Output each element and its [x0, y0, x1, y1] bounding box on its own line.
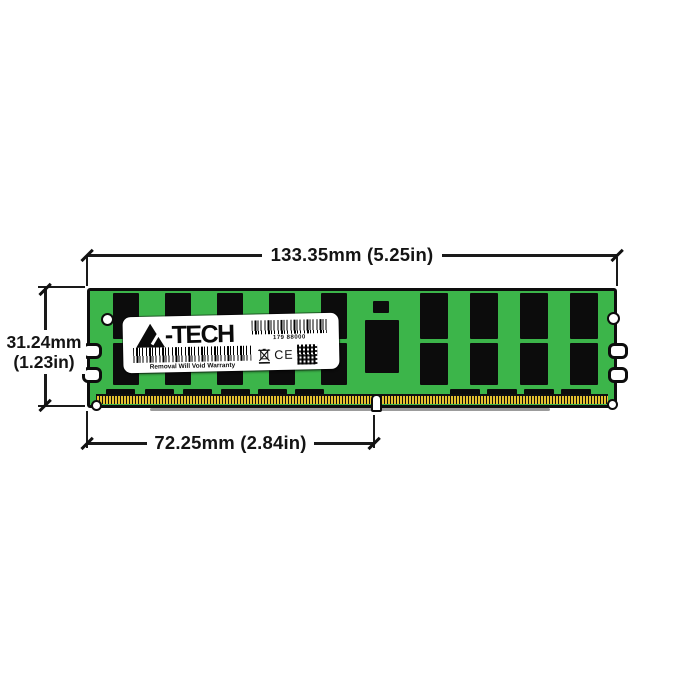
dram-chip — [420, 343, 448, 385]
qr-code-icon — [297, 344, 317, 364]
serial-number: 179 88000 — [252, 334, 327, 342]
height-dimension-mm: 31.24mm — [2, 332, 86, 352]
width-dimension-label: 133.35mm (5.25in) — [262, 244, 443, 266]
key-notch — [371, 394, 382, 412]
gold-contact-pins — [96, 394, 608, 404]
ram-module: -TECH 179 88000 Removal Will Void Warran… — [87, 288, 617, 408]
warranty-warning-text: Removal Will Void Warranty — [133, 362, 251, 371]
module-shadow — [150, 408, 550, 411]
height-dimension-label: 31.24mm (1.23in) — [2, 330, 86, 374]
barcode-icon — [252, 319, 327, 335]
dram-chip — [570, 293, 598, 339]
dram-chip — [420, 293, 448, 339]
width-dimension-label-wrap: 133.35mm (5.25in) — [87, 244, 617, 266]
height-dimension-in: (1.23in) — [2, 352, 86, 372]
dram-chip — [520, 293, 548, 339]
brand-wordmark: -TECH — [165, 322, 234, 348]
ram-dimension-diagram: 133.35mm (5.25in) 31.24mm (1.23in) 72.25… — [0, 0, 700, 700]
mounting-hole — [607, 312, 620, 325]
weee-crossed-bin-icon — [257, 346, 271, 364]
mounting-hole — [101, 313, 114, 326]
edge-notch — [608, 367, 628, 383]
dram-chip — [470, 343, 498, 385]
spd-chip — [373, 301, 389, 313]
dram-chip — [470, 293, 498, 339]
edge-notch — [608, 343, 628, 359]
register-buffer-chip — [365, 320, 399, 373]
mounting-hole — [91, 400, 102, 411]
atech-label: -TECH 179 88000 Removal Will Void Warran… — [122, 313, 339, 374]
notch-dimension-label-wrap: 72.25mm (2.84in) — [87, 432, 374, 454]
barcode-icon — [133, 346, 251, 363]
mounting-hole — [607, 399, 618, 410]
dram-chip — [520, 343, 548, 385]
notch-dimension-label: 72.25mm (2.84in) — [147, 432, 313, 454]
a-tech-triangle-logo-icon: -TECH — [136, 320, 234, 349]
dram-chip — [570, 343, 598, 385]
ce-mark: CE — [274, 348, 294, 362]
